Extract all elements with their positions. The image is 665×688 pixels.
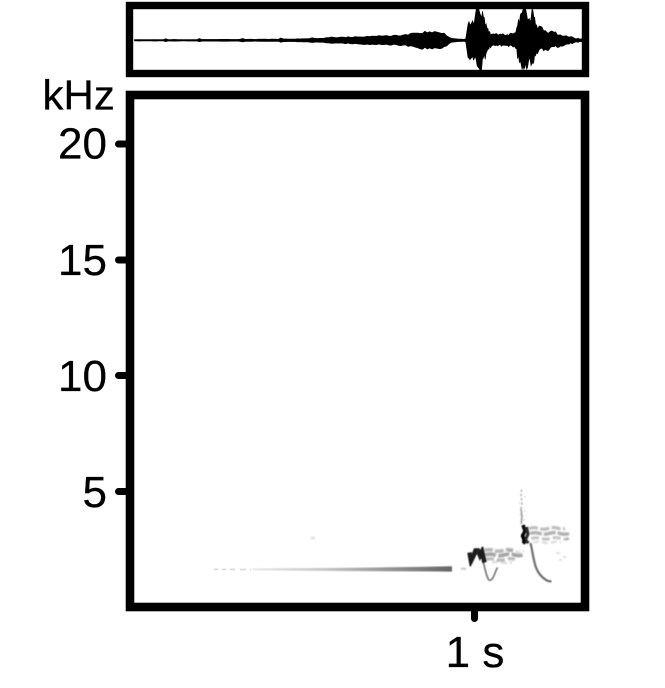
svg-text:10: 10 [58,352,107,401]
svg-text:1 s: 1 s [446,628,505,677]
svg-text:5: 5 [83,468,107,517]
svg-text:15: 15 [58,236,107,285]
svg-text:20: 20 [58,120,107,169]
svg-text:kHz: kHz [43,72,115,119]
